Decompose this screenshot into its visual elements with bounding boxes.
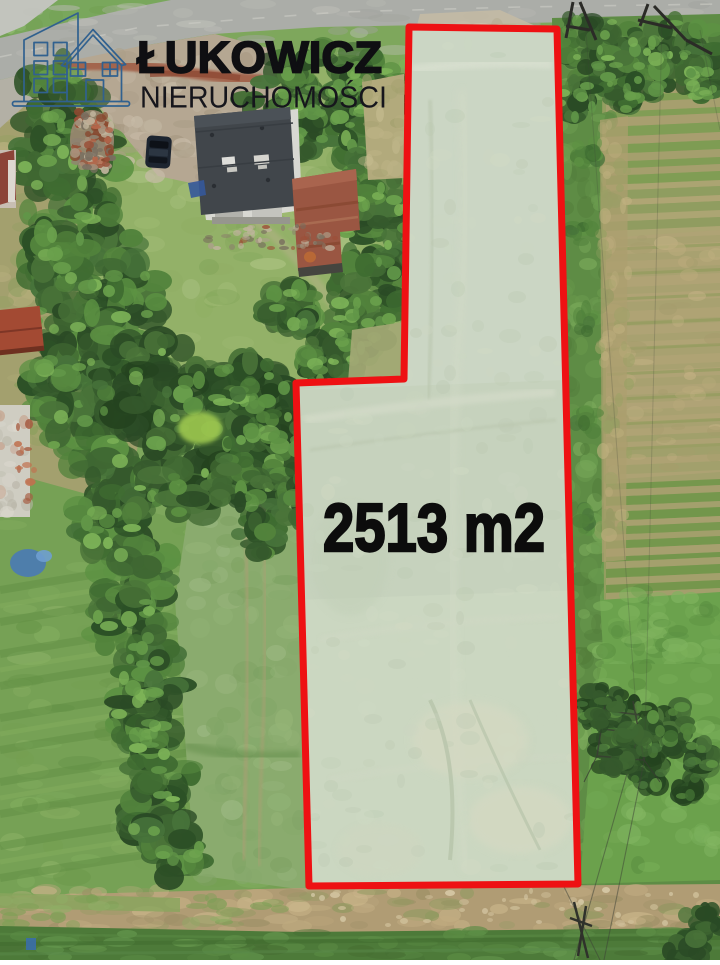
svg-text:ŁUKOWICZ: ŁUKOWICZ bbox=[137, 34, 382, 83]
svg-text:NIERUCHOMOŚCI: NIERUCHOMOŚCI bbox=[140, 79, 387, 115]
svg-text:2513 m2: 2513 m2 bbox=[323, 490, 545, 566]
